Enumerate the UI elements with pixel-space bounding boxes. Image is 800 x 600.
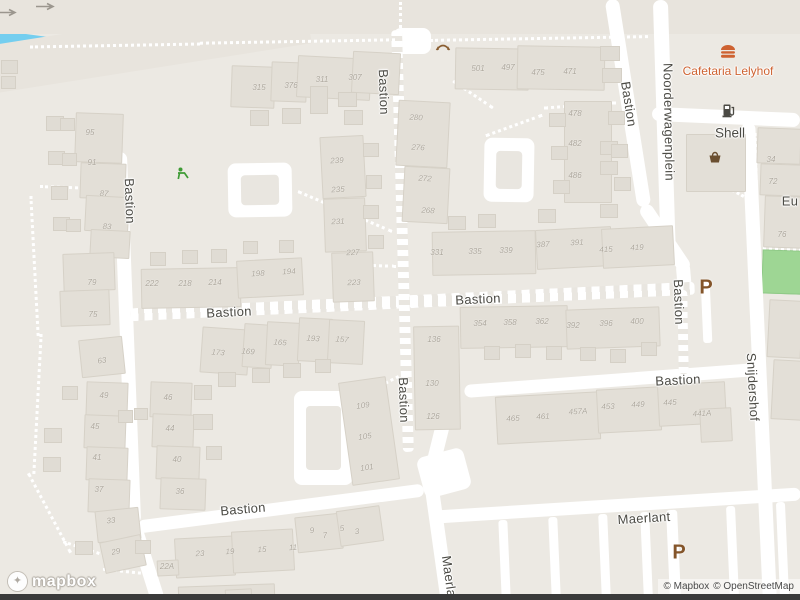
shed [43,457,61,472]
street-label: Bastion [220,501,266,518]
fuel-icon [722,103,737,124]
house-number: 5 [339,525,345,534]
footpath-dotted [485,114,542,137]
street-label: Bastion [123,178,138,224]
shed [75,541,93,555]
shed [484,346,500,360]
shed [66,219,81,232]
house-number: 486 [568,172,581,180]
mapbox-logo-text: mapbox [32,573,96,591]
house-number: 87 [99,190,108,198]
house-number: 46 [164,394,173,402]
shed [600,46,620,61]
house-number: 392 [566,322,579,330]
house-number: 40 [173,456,182,464]
bottom-dark-bar [0,594,800,600]
shed [363,205,379,219]
house-number: 130 [425,380,438,388]
house-number: 331 [430,249,443,257]
mapbox-logo-icon [8,572,27,591]
footpath-dotted [29,196,39,336]
shed [515,344,531,358]
parking-icon: P [699,277,712,300]
house-number: 376 [284,82,297,90]
house-number: 276 [411,144,425,153]
shed [310,86,328,114]
house-number: 457A [568,408,587,417]
shed [1,60,18,74]
house-number: 223 [347,279,361,287]
shed [282,108,301,124]
courtyard-inner [496,151,523,189]
house-number: 441A [692,410,711,419]
park-green-area [761,249,800,294]
house-number: 482 [568,140,581,148]
shed [211,249,227,263]
shed [1,76,16,89]
house-number: 7 [322,532,328,541]
shed [182,250,198,264]
house-number: 315 [252,84,265,92]
shed [614,177,631,191]
building [767,299,800,359]
house-number: 400 [630,318,643,326]
shed [279,240,294,253]
shed [641,342,657,356]
house-number: 387 [536,241,550,250]
house-number: 335 [468,248,481,256]
house-number: 165 [273,339,287,348]
parking-aisle [548,517,561,598]
shed [600,161,618,175]
building [770,359,800,421]
house-number: 307 [348,74,361,82]
restaurant-icon [719,44,737,64]
house-number: 222 [145,280,158,288]
house-number: 465 [506,415,520,424]
shed [150,252,166,266]
shed [135,540,151,554]
house-number: 79 [88,279,97,287]
mapbox-logo[interactable]: mapbox [8,572,96,591]
building [756,127,800,165]
house-number: 339 [499,247,512,255]
house-number: 3 [354,528,360,537]
shed [44,428,62,443]
shed [315,359,331,373]
street-label: Bastion [455,291,501,306]
house-number: 449 [631,401,645,410]
house-number: 198 [251,270,265,279]
shed [283,363,301,378]
street-label: Eu [782,195,799,208]
attribution-bar: © Mapbox © OpenStreetMap [658,579,800,594]
house-number: 445 [663,399,677,408]
house-number: 72 [769,178,778,186]
house-number: 231 [331,218,345,226]
house-number: 19 [225,548,234,556]
house-number: 193 [306,335,320,344]
building [432,230,537,276]
house-number: 272 [418,175,432,184]
shed [363,143,379,157]
house-number: 391 [570,239,584,248]
house-number: 136 [427,336,440,344]
house-number: 37 [95,486,104,494]
shed [538,209,556,223]
street-label: Noorderwagenplein [661,63,676,181]
shed [206,446,222,460]
house-number: 362 [535,318,548,326]
house-number: 194 [282,268,296,277]
shed [549,113,566,127]
shed [366,175,382,189]
parking-icon: P [672,542,685,565]
shed [194,385,212,400]
shed [600,204,618,218]
building [759,163,800,196]
house-number: 396 [599,320,612,328]
house-number: 36 [176,488,185,496]
house-number: 11 [289,544,298,552]
attribution-osm-link[interactable]: © OpenStreetMap [713,581,794,592]
house-number: 44 [166,425,175,433]
shed [193,414,213,430]
house-number: 501 [471,65,484,73]
shed [611,144,628,158]
footpath-dotted [399,2,402,28]
house-number: 453 [601,403,615,412]
house-number: 91 [88,159,97,167]
playground-icon [175,166,191,186]
house-number: 311 [316,76,329,84]
house-number: 169 [241,348,255,357]
house-number: 358 [503,319,516,327]
cafetaria-lelyhof-label: Cafetaria Lelyhof [683,64,774,78]
house-number: 354 [473,320,486,328]
shed [118,410,133,423]
house-number: 239 [330,157,344,166]
house-number: 235 [331,186,345,195]
house-number: 214 [208,279,221,287]
shed [252,368,270,383]
shed [478,214,496,228]
arrow-icon [0,4,19,22]
shed [551,146,568,160]
house-number: 15 [257,546,266,554]
shed [62,386,78,400]
shed [218,372,236,387]
house-number: 461 [536,413,550,422]
street-label: Bastion [377,69,392,115]
street-label: Bastion [672,279,687,325]
parking-aisle [598,514,611,598]
shed [546,346,562,360]
building [85,446,128,481]
bench-icon [436,38,451,56]
house-number: 280 [409,114,423,123]
house-number: 475 [531,69,544,77]
building [517,45,606,91]
house-number: 218 [178,280,191,288]
shed [243,241,258,254]
building [174,535,236,578]
parking-aisle [498,520,510,598]
footpath-dotted [32,334,42,474]
street-label: Maerlant [617,510,671,526]
street-label: Bastion [206,304,252,319]
house-number: 419 [630,244,644,253]
house-number: 49 [100,392,109,400]
house-number: 22A [160,563,174,571]
basket-icon [707,150,723,170]
street-label: Bastion [655,372,701,387]
house-number: 268 [421,207,435,216]
building [236,257,304,298]
house-number: 63 [97,356,107,365]
shed [60,118,75,131]
house-number: 471 [563,68,576,76]
house-number: 95 [86,129,95,137]
house-number: 33 [106,517,116,526]
shed [134,408,148,420]
shell-fuel-station-label: Shell [715,126,745,141]
house-number: 45 [91,423,100,431]
shed [368,235,384,249]
shed [448,216,466,230]
house-number: 173 [211,349,225,358]
house-number: 34 [767,156,776,164]
shed [580,347,596,361]
street-label: Bastion [397,377,412,423]
shed [338,92,357,107]
shed [62,153,77,166]
courtyard-inner [241,175,280,206]
map-canvas[interactable]: mapbox © Mapbox © OpenStreetMap 95918783… [0,0,800,600]
shed [610,349,626,363]
house-number: 415 [599,246,613,255]
building [59,289,110,327]
arrow-icon [35,0,57,16]
house-number: 497 [501,64,514,72]
building [323,197,367,252]
house-number: 227 [346,249,360,257]
shed [344,110,363,125]
house-number: 76 [778,231,787,239]
house-number: 478 [568,110,581,118]
building [395,100,450,169]
shed [51,186,68,200]
house-number: 83 [102,223,111,231]
courtyard-inner [306,406,341,470]
building [74,112,124,164]
street-label: Snijdershof [745,353,762,422]
house-number: 75 [89,311,98,319]
shed [250,110,269,126]
house-number: 9 [309,527,315,536]
house-number: 23 [195,550,204,558]
shed [553,180,570,194]
house-number: 126 [426,413,439,421]
house-number: 157 [335,336,349,345]
attribution-mapbox-link[interactable]: © Mapbox [664,581,710,592]
house-number: 41 [93,454,102,462]
building [141,267,242,309]
shed [602,68,622,83]
